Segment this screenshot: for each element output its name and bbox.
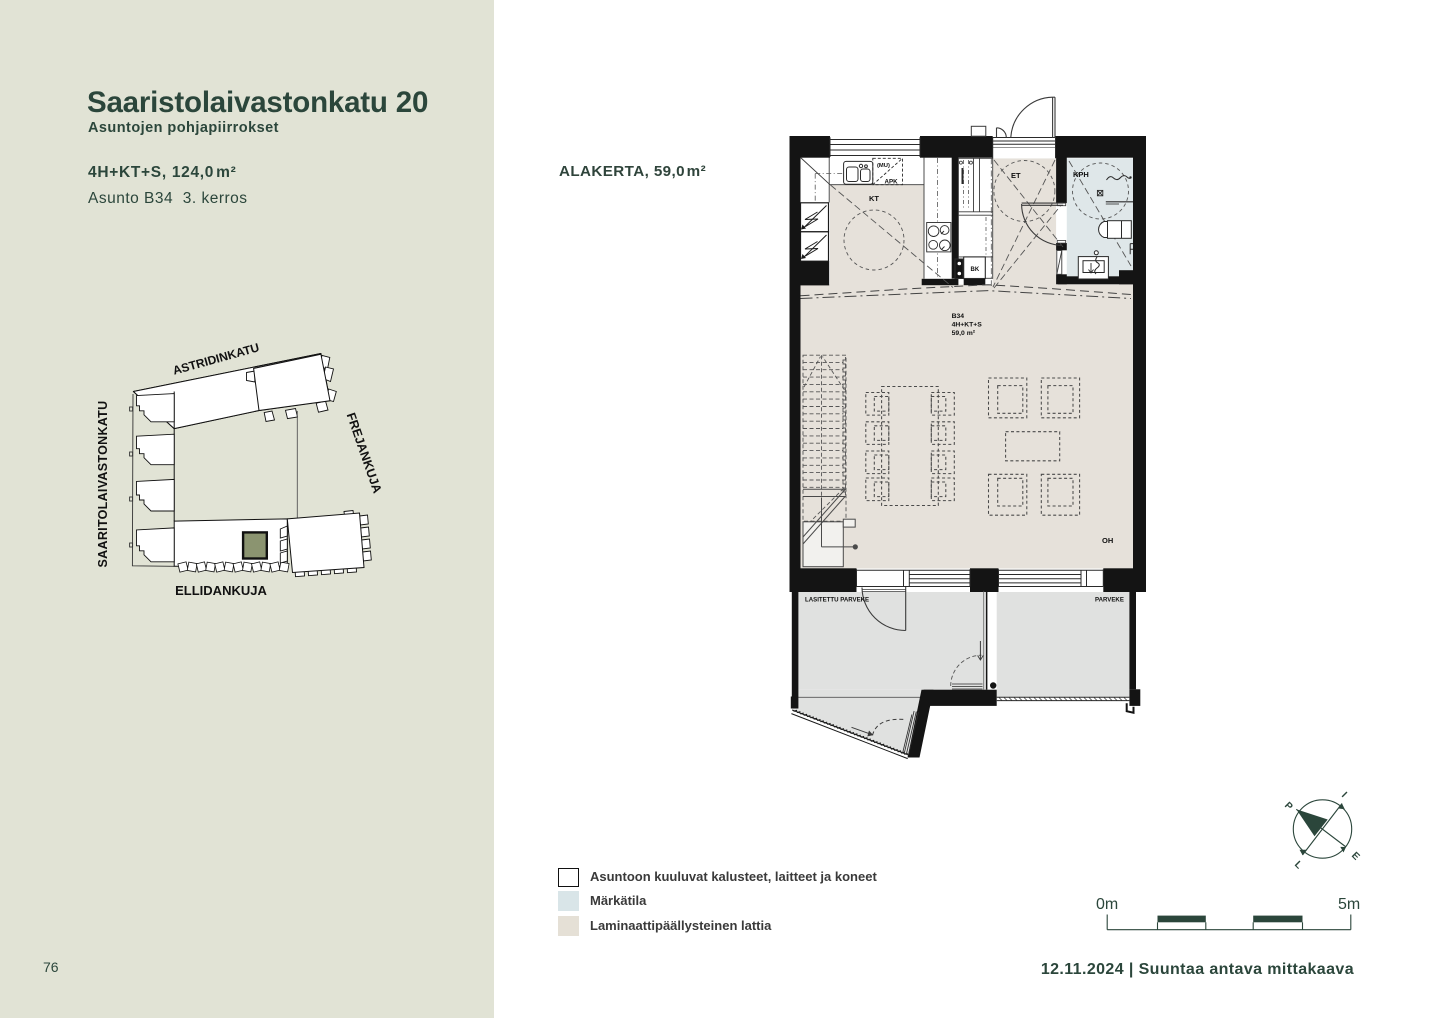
svg-text:P: P (1282, 800, 1295, 813)
svg-text:(MU): (MU) (877, 163, 890, 169)
svg-text:KPH: KPH (1073, 170, 1089, 179)
svg-text:ET: ET (1011, 171, 1021, 180)
svg-text:5m: 5m (1338, 896, 1360, 913)
svg-text:0m: 0m (1096, 896, 1118, 913)
svg-text:E: E (1349, 850, 1362, 863)
svg-text:L: L (1292, 859, 1304, 871)
svg-text:BK: BK (971, 267, 980, 273)
svg-text:APK: APK (885, 179, 899, 186)
svg-text:59,0 m²: 59,0 m² (952, 330, 976, 337)
svg-text:OH: OH (1102, 536, 1113, 545)
svg-text:PARVEKE: PARVEKE (1095, 597, 1124, 604)
svg-text:KT: KT (869, 194, 879, 203)
svg-text:I: I (1339, 790, 1349, 800)
svg-text:4H+KT+S: 4H+KT+S (952, 322, 983, 329)
svg-text:LASITETTU PARVEKE: LASITETTU PARVEKE (805, 597, 869, 604)
svg-text:B34: B34 (952, 313, 965, 320)
